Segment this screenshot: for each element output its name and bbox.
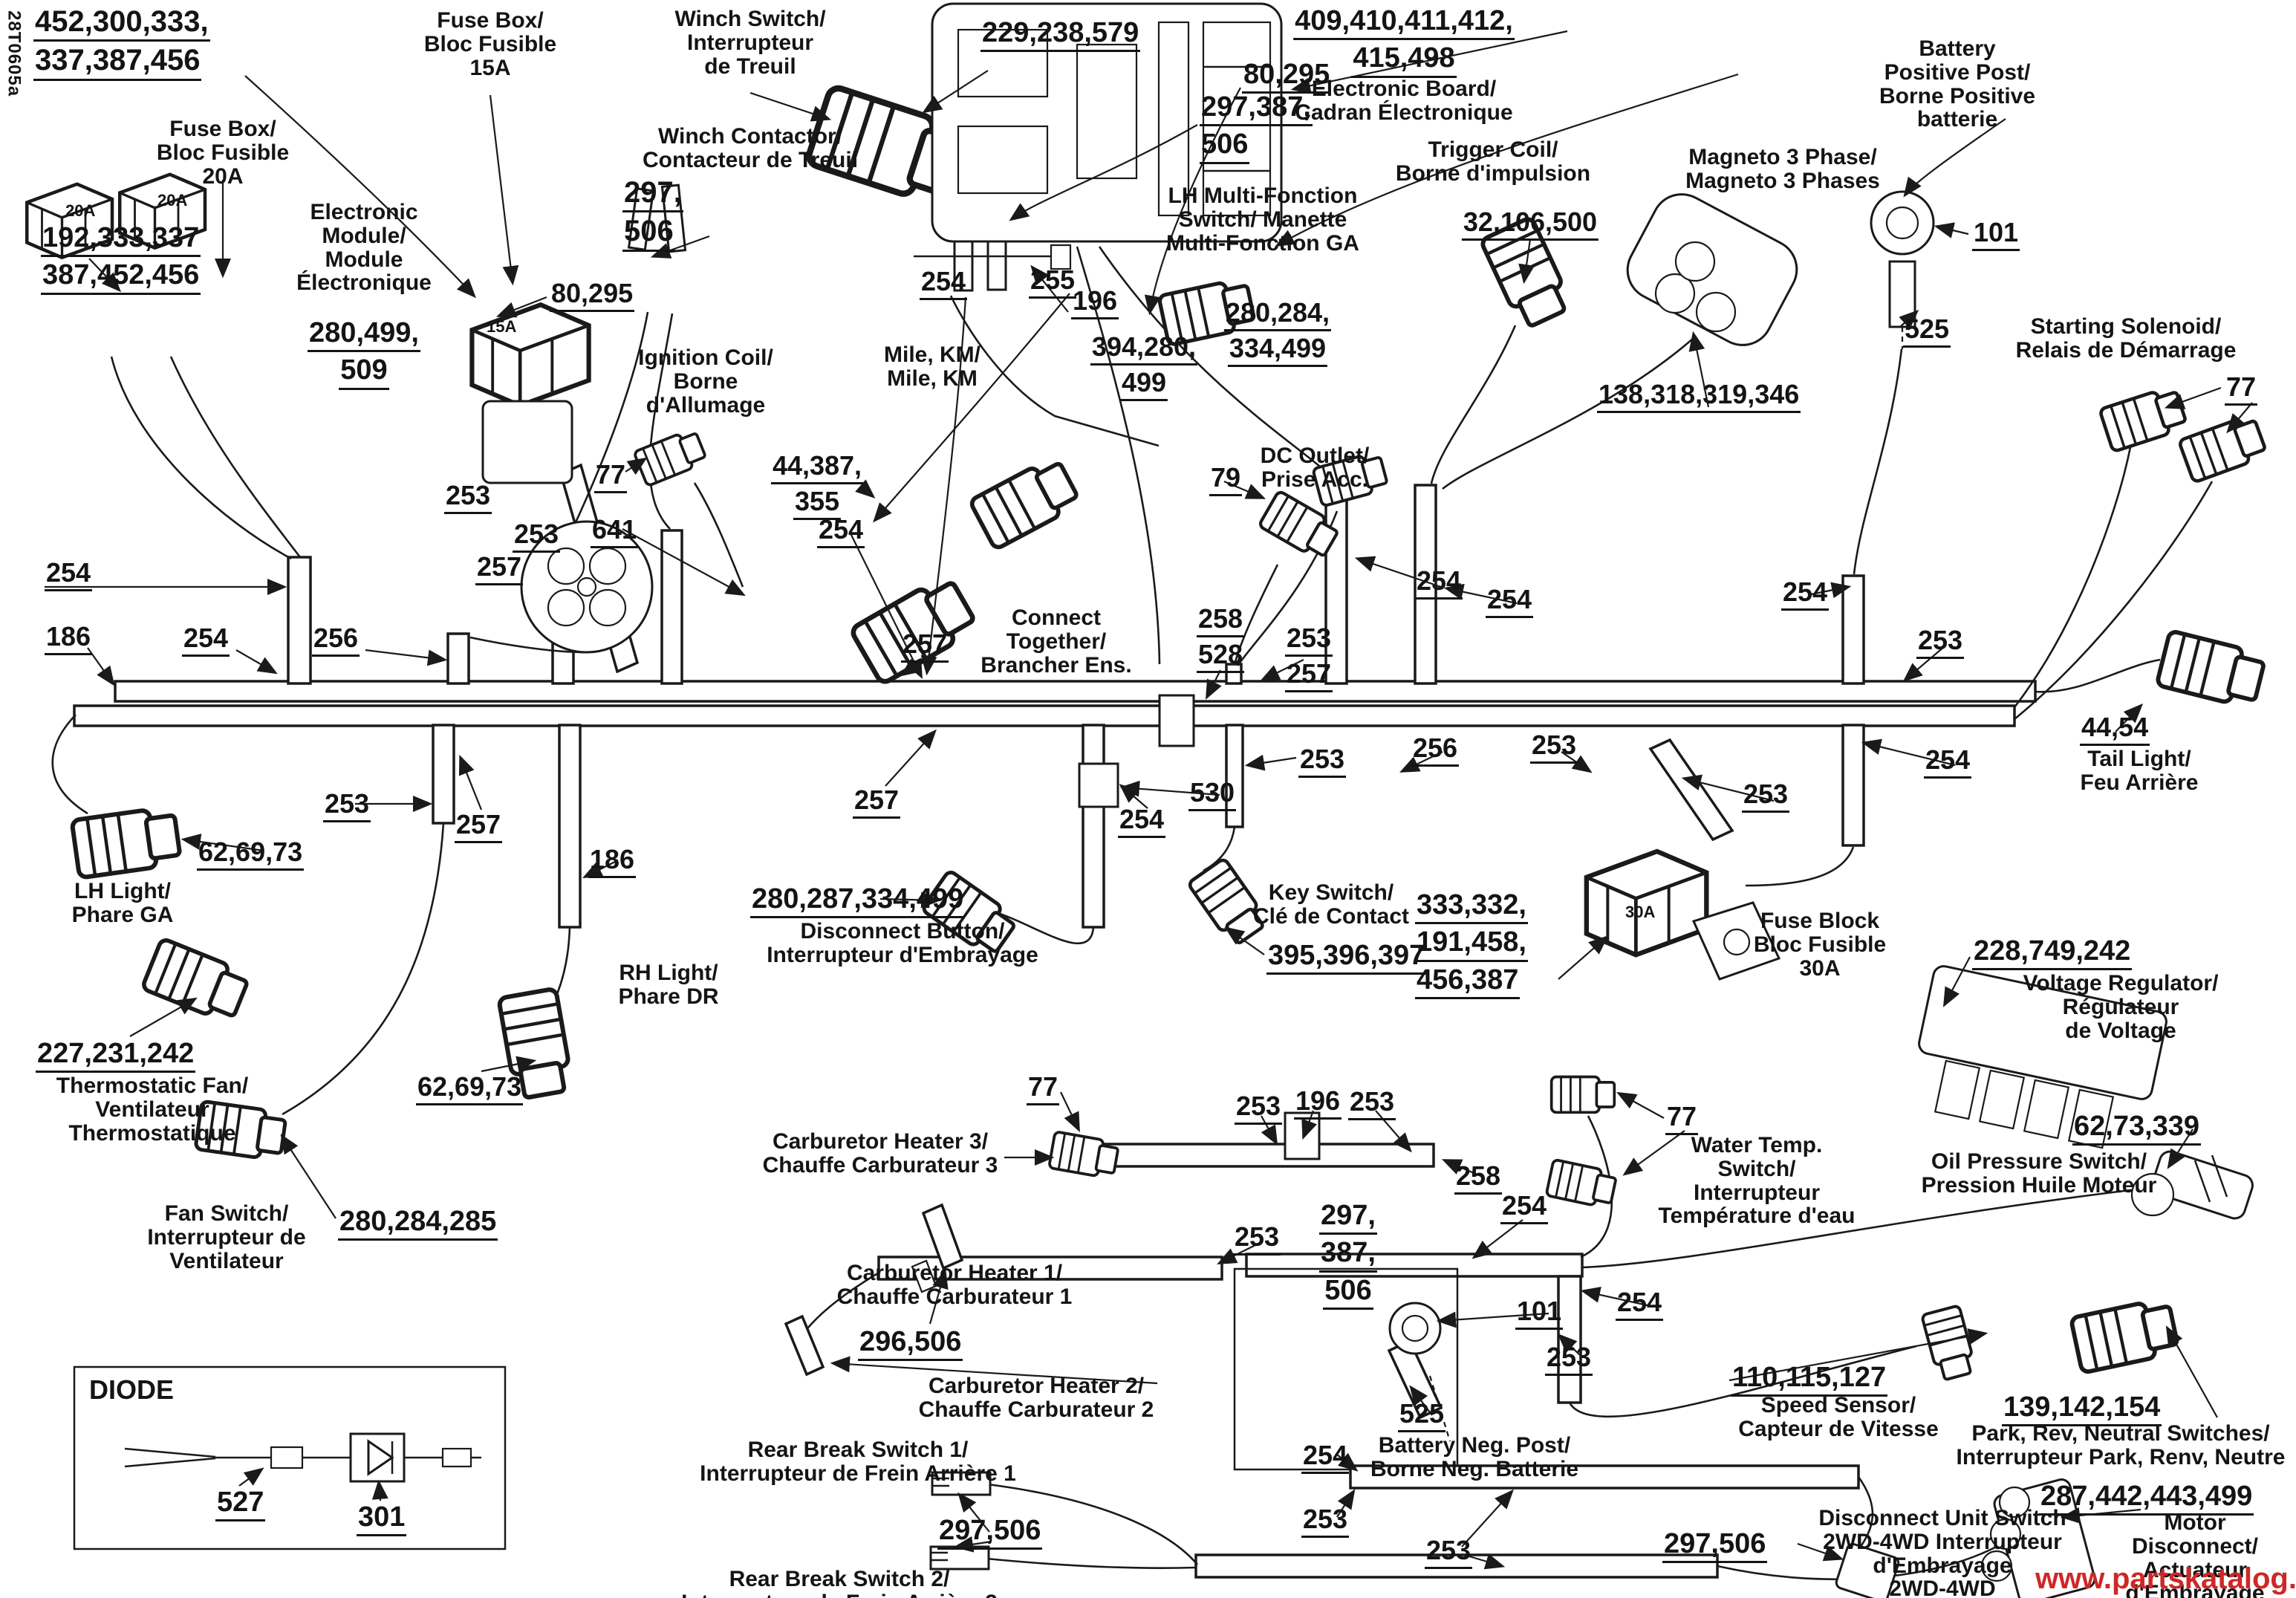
label-line: Together/ xyxy=(1006,630,1106,654)
label-line: 80,295 xyxy=(550,279,634,312)
label-line: Interrupteur de Frein Arrière 2 xyxy=(681,1591,998,1598)
lbl-voltage-regulator: Voltage Regulator/Régulateurde Voltage xyxy=(2023,972,2219,1042)
label-line: 258 xyxy=(1454,1162,1502,1195)
battery-neg-ring-glyph xyxy=(1390,1303,1440,1354)
lbl-carb2: Carburetor Heater 2/Chauffe Carburateur … xyxy=(919,1374,1154,1422)
marking-15a: 15A xyxy=(487,318,516,335)
lh-light-connector-glyph xyxy=(71,806,181,877)
lbl-water-temp: Water Temp.Switch/InterrupteurTempératur… xyxy=(1659,1134,1856,1228)
label-line: 62,69,73 xyxy=(416,1073,523,1105)
ref-ignition-coil: 77 xyxy=(594,461,627,496)
marking-20a-1: 20A xyxy=(65,202,95,219)
ref-key-switch: 395,396,397 xyxy=(1266,941,1426,978)
label-line: Voltage Regulator/ xyxy=(2023,972,2219,995)
ref-80295-fusebox: 80,295 xyxy=(550,279,634,315)
label-line: Ventilateur xyxy=(169,1250,283,1273)
label-line: Oil Pressure Switch/ xyxy=(1931,1150,2147,1174)
carb-heater3-connector-glyph xyxy=(1049,1131,1119,1179)
label-line: Starting Solenoid/ xyxy=(2031,315,2222,339)
label-line: Trigger Coil/ xyxy=(1428,138,1558,162)
ref-254-mid: 254 xyxy=(817,516,865,551)
label-line: Bloc Fusible xyxy=(157,141,289,165)
battery-ring-glyph xyxy=(1871,192,1934,254)
lbl-park-rev: Park, Rev, Neutral Switches/Interrupteur… xyxy=(1957,1422,2286,1469)
lbl-carb3: Carburetor Heater 3/Chauffe Carburateur … xyxy=(763,1130,998,1178)
label-line: 79 xyxy=(1209,464,1242,496)
label-line: 30A xyxy=(1799,957,1840,981)
label-line: 254 xyxy=(1118,805,1165,838)
label-line: 415,498 xyxy=(1351,43,1456,77)
ref-253-fuseblock-feed: 253 xyxy=(1742,780,1789,816)
wiring-diagram-page: 28T0605a452,300,333,337,387,456Fuse Box/… xyxy=(0,0,2296,1598)
label-line: 257 xyxy=(853,786,900,819)
ref-254-fuseblock: 254 xyxy=(1924,746,1971,782)
label-line: Tail Light/ xyxy=(2087,747,2191,771)
ref-rear-brake: 297,506 xyxy=(937,1516,1042,1553)
label-line: Disconnect Unit Switch xyxy=(1818,1507,2066,1530)
label-line: Fuse Box/ xyxy=(169,117,276,141)
label-line: 253 xyxy=(1348,1088,1396,1120)
label-line: Rear Break Switch 2/ xyxy=(729,1568,950,1591)
label-line: 257 xyxy=(475,553,523,585)
ref-253-bottom: 253 xyxy=(1301,1505,1349,1541)
ref-253-dunit: 253 xyxy=(1425,1536,1472,1572)
label-line: d'Allumage xyxy=(646,394,766,418)
lbl-dc-outlet: DC Outlet/Prise Acc. xyxy=(1261,444,1370,492)
ref-disconnect-button: 280,287,334,499 xyxy=(750,884,965,921)
ref-254-530: 254 xyxy=(1118,805,1165,841)
ref-253-water: 253 xyxy=(1348,1088,1396,1123)
ref-253-key: 253 xyxy=(1298,745,1346,781)
label-line: 253 xyxy=(1285,624,1333,657)
label-line: 409,410,411,412, xyxy=(1293,6,1515,40)
lbl-carb1: Carburetor Heater 1/Chauffe Carburateur … xyxy=(837,1261,1073,1309)
label-line: Winch Switch/ xyxy=(674,7,825,31)
label-line: LH Multi-Fonction xyxy=(1168,184,1358,208)
label-line: 257 xyxy=(901,630,949,663)
diode-title: DIODE xyxy=(89,1376,174,1404)
label-line: 28T0605a xyxy=(4,10,23,97)
label-line: Électronique xyxy=(296,271,432,295)
label-line: 258 xyxy=(1197,605,1244,637)
label-line: 62,73,339 xyxy=(2072,1111,2201,1146)
ref-electronic-module: 280,499,509 xyxy=(308,318,420,393)
label-line: 334,499 xyxy=(1228,334,1327,367)
thermostatic-fan-connector-glyph xyxy=(142,938,251,1024)
label-line: Ventilateur xyxy=(95,1098,209,1122)
label-line: Interrupteur de Frein Arrière 1 xyxy=(700,1462,1016,1486)
ref-diode: 301 xyxy=(357,1502,406,1539)
label-line: Interrupteur d'Embrayage xyxy=(767,943,1038,967)
ref-battery-ring: 101 xyxy=(1972,218,2020,254)
label-line: Mile, KM xyxy=(887,367,978,391)
label-line: 253 xyxy=(1301,1505,1349,1538)
ref-253-right: 253 xyxy=(1916,626,1964,662)
label-line: Bloc Fusible xyxy=(1754,933,1886,957)
magneto-connector-glyph xyxy=(1617,183,1807,355)
label-line: Brancher Ens. xyxy=(980,654,1131,678)
label-line: Pression Huile Moteur xyxy=(1922,1174,2157,1198)
ref-258-528: 258528 xyxy=(1197,605,1244,676)
label-line: 254 xyxy=(45,559,92,591)
label-line: Relais de Démarrage xyxy=(2016,339,2237,363)
label-line: 297,506 xyxy=(1662,1529,1767,1563)
ref-196-carbbus: 196 xyxy=(1294,1087,1341,1123)
label-line: Borne d'impulsion xyxy=(1396,162,1590,186)
ref-connect-a: 44,387,355 xyxy=(771,452,863,523)
label-line: 253 xyxy=(323,790,371,822)
label-line: 256 xyxy=(1411,734,1459,767)
label-line: LH Light/ xyxy=(74,880,171,903)
label-line: 253 xyxy=(1425,1536,1472,1569)
label-line: Connect xyxy=(1012,606,1101,630)
label-line: 77 xyxy=(1665,1102,1698,1135)
ref-255: 255 xyxy=(1029,266,1076,302)
label-line: batterie xyxy=(1917,108,1997,131)
label-line: Positive Post/ xyxy=(1884,61,2031,85)
park-rev-neutral-connector-glyph xyxy=(2071,1298,2179,1373)
label-line: 253 xyxy=(444,481,492,514)
ref-253-below-right: 253 xyxy=(1530,731,1578,767)
label-line: Winch Contactor/ xyxy=(658,125,842,149)
ref-magneto: 138,318,319,346 xyxy=(1597,380,1801,416)
ref-trigger-coil: 32,106,500 xyxy=(1462,208,1599,244)
ref-mile-km: 196 xyxy=(1071,287,1119,322)
lbl-electronic-board: Electronic Board/Cadran Électronique xyxy=(1295,77,1512,125)
ref-battery-conduit: 525 xyxy=(1903,315,1951,351)
label-line: Chauffe Carburateur 3 xyxy=(763,1154,998,1178)
label-line: Prise Acc. xyxy=(1261,468,1368,492)
label-line: 254 xyxy=(1500,1192,1548,1224)
label-line: Mile, KM/ xyxy=(884,343,980,367)
ref-256-below: 256 xyxy=(1411,734,1459,770)
label-line: Clé de Contact xyxy=(1253,905,1409,929)
ref-lh-light: 62,69,73 xyxy=(197,838,304,874)
lbl-connect-together: ConnectTogether/Brancher Ens. xyxy=(980,606,1131,677)
ref-257-fan: 257 xyxy=(455,811,502,846)
label-line: Borne Neg. Batterie xyxy=(1370,1458,1578,1481)
lbl-trigger-coil: Trigger Coil/Borne d'impulsion xyxy=(1396,138,1590,186)
ref-rh-light: 62,69,73 xyxy=(416,1073,523,1108)
ref-fuse-block: 333,332,191,458,456,387 xyxy=(1415,890,1528,1002)
label-line: 101 xyxy=(1972,218,2020,251)
label-line: Disconnect/ xyxy=(2132,1535,2258,1559)
label-line: 253 xyxy=(1298,745,1346,778)
lbl-electronic-module: ElectronicModule/ModuleÉlectronique xyxy=(296,201,432,295)
label-line: Phare DR xyxy=(618,985,718,1009)
label-line: 77 xyxy=(1027,1073,1059,1105)
ref-530: 530 xyxy=(1188,779,1236,814)
ref-253-upleft1: 253 xyxy=(444,481,492,517)
ref-254-water: 254 xyxy=(1500,1192,1548,1227)
ref-297-387-506: 297,387,506 xyxy=(1319,1201,1377,1313)
label-line: Fan Switch/ xyxy=(165,1202,289,1226)
label-line: Capteur de Vitesse xyxy=(1738,1417,1939,1441)
label-line: RH Light/ xyxy=(619,961,718,985)
ref-253-carb2: 253 xyxy=(1233,1223,1281,1258)
label-line: 280,284, xyxy=(1224,299,1331,331)
label-line: 196 xyxy=(1071,287,1119,319)
lbl-lh-multifunction: LH Multi-FonctionSwitch/ ManetteMulti-Fo… xyxy=(1166,184,1359,255)
label-line: de Treuil xyxy=(704,55,796,79)
label-line: 280,499, xyxy=(308,318,420,352)
label-line: Fuse Block xyxy=(1760,909,1879,933)
label-line: 296,506 xyxy=(858,1327,963,1361)
label-line: 15A xyxy=(487,318,516,335)
ref-fusebox15: 452,300,333,337,387,456 xyxy=(33,6,210,84)
label-line: 254 xyxy=(1486,585,1533,618)
label-line: 506 xyxy=(1200,129,1249,163)
tail-light-connector-glyph xyxy=(2156,631,2266,709)
label-line: 509 xyxy=(339,355,388,389)
label-line: Motor xyxy=(2164,1511,2225,1535)
lbl-thermostatic-fan: Thermostatic Fan/VentilateurThermostatiq… xyxy=(56,1074,248,1145)
label-line: 256 xyxy=(312,624,360,657)
ref-connect-b: 641 xyxy=(591,516,638,551)
label-line: Park, Rev, Neutral Switches/ xyxy=(1971,1422,2269,1446)
label-line: Température d'eau xyxy=(1659,1204,1856,1228)
label-line: 186 xyxy=(588,845,636,878)
label-line: 253 xyxy=(1742,780,1789,813)
lbl-lh-light: LH Light/Phare GA xyxy=(72,880,174,927)
label-line: 228,749,242 xyxy=(1972,936,2132,970)
label-line: Magneto 3 Phases xyxy=(1685,169,1880,193)
label-line: 254 xyxy=(1924,746,1971,779)
label-line: Key Switch/ xyxy=(1269,881,1393,905)
label-line: 525 xyxy=(1903,315,1951,348)
label-line: 506 xyxy=(1323,1276,1373,1310)
water-temp-connector-glyph-1 xyxy=(1552,1077,1615,1113)
lbl-speed-sensor: Speed Sensor/Capteur de Vitesse xyxy=(1738,1394,1939,1441)
label-line: Interrupteur de xyxy=(147,1226,305,1250)
solenoid-connector-glyph-2 xyxy=(2179,414,2268,482)
label-line: Speed Sensor/ xyxy=(1761,1394,1916,1417)
label-line: 254 xyxy=(1301,1441,1349,1474)
label-line: 254 xyxy=(1616,1288,1663,1321)
ref-fan-switch: 280,284,285 xyxy=(338,1206,498,1244)
label-line: 186 xyxy=(45,623,92,655)
label-line: 257 xyxy=(1285,660,1333,692)
label-line: Rear Break Switch 1/ xyxy=(748,1438,969,1462)
label-line: 227,231,242 xyxy=(36,1039,195,1073)
ref-253-257: 253257 xyxy=(1285,624,1333,695)
ref-tail-light: 44,54 xyxy=(2080,713,2150,749)
label-line: 456,387 xyxy=(1415,965,1520,999)
label-line: Multi-Fonction GA xyxy=(1166,232,1359,256)
label-line: Carburetor Heater 2/ xyxy=(929,1374,1144,1398)
ref-carb1: 296,506 xyxy=(858,1327,963,1364)
label-line: Electronic Board/ xyxy=(1312,77,1496,101)
label-line: 337,387,456 xyxy=(33,45,201,80)
label-line: 530 xyxy=(1188,779,1236,811)
ref-oil-pressure: 62,73,339 xyxy=(2072,1111,2201,1149)
label-line: DC Outlet/ xyxy=(1261,444,1370,468)
label-line: Chauffe Carburateur 1 xyxy=(837,1285,1073,1309)
label-line: Interrupteur xyxy=(687,31,813,55)
ref-253-fan: 253 xyxy=(323,790,371,825)
label-line: DIODE xyxy=(89,1376,174,1404)
label-line: 110,115,127 xyxy=(1731,1362,1887,1397)
label-line: Battery Neg. Post/ xyxy=(1379,1434,1570,1458)
label-line: 333,332, xyxy=(1415,890,1528,924)
label-line: Ignition Coil/ xyxy=(638,346,773,370)
label-line: 20A xyxy=(202,165,243,189)
ref-electronic-board: 409,410,411,412,415,498 xyxy=(1293,6,1515,81)
ref-254-long: 254 xyxy=(920,267,967,303)
label-line: 2WD-4WD xyxy=(1889,1577,1995,1598)
label-line: 30A xyxy=(1625,903,1655,920)
marking-30a: 30A xyxy=(1625,903,1655,920)
label-line: 528 xyxy=(1197,640,1244,673)
label-line: 15A xyxy=(469,56,510,80)
lbl-ignition-coil: Ignition Coil/Borned'Allumage xyxy=(638,346,773,417)
lbl-key-switch: Key Switch/Clé de Contact xyxy=(1253,881,1409,929)
label-line: 20A xyxy=(157,192,187,209)
lbl-tail-light: Tail Light/Feu Arrière xyxy=(2081,747,2199,795)
lbl-oil-pressure: Oil Pressure Switch/Pression Huile Moteu… xyxy=(1922,1150,2157,1198)
ref-thermostatic-fan: 227,231,242 xyxy=(36,1039,195,1076)
ignition-coil-connector-glyph xyxy=(634,428,708,487)
ref-carb3: 77 xyxy=(1027,1073,1059,1108)
lbl-starting-solenoid: Starting Solenoid/Relais de Démarrage xyxy=(2016,315,2237,363)
label-line: 506 xyxy=(622,215,675,251)
ref-254-dc: 254 xyxy=(1415,567,1463,603)
label-line: 253 xyxy=(1235,1092,1282,1125)
label-line: Bloc Fusible xyxy=(424,33,556,56)
label-line: 297,506 xyxy=(937,1516,1042,1550)
ref-254-bottom: 254 xyxy=(1301,1441,1349,1477)
label-line: 77 xyxy=(594,461,627,493)
label-line: 229,238,579 xyxy=(980,18,1140,52)
label-line: 395,396,397 xyxy=(1266,941,1426,975)
label-line: Fuse Box/ xyxy=(437,9,543,33)
ref-254-left2: 254 xyxy=(182,624,230,660)
label-line: 527 xyxy=(215,1487,265,1521)
label-line: 255 xyxy=(1029,266,1076,299)
label-line: 387,452,456 xyxy=(41,260,201,294)
ref-fusebox20: 192,333,337387,452,456 xyxy=(41,223,201,298)
label-line: 191,458, xyxy=(1415,927,1528,961)
ref-253-speed: 253 xyxy=(1545,1343,1593,1379)
label-line: 62,69,73 xyxy=(197,838,304,871)
label-line: 394,280, xyxy=(1090,333,1197,366)
label-line: 452,300,333, xyxy=(33,6,210,42)
ref-254-battery: 254 xyxy=(1781,578,1829,614)
lbl-fusebox20: Fuse Box/Bloc Fusible20A xyxy=(157,117,289,188)
lbl-fan-switch: Fan Switch/Interrupteur deVentilateur xyxy=(147,1202,305,1273)
label-line: Module/ xyxy=(322,224,406,248)
label-line: 257 xyxy=(455,811,502,843)
lbl-rear-brake2: Rear Break Switch 2/Interrupteur de Frei… xyxy=(681,1568,998,1598)
label-line: 253 xyxy=(1233,1223,1281,1256)
label-line: Feu Arrière xyxy=(2081,771,2199,795)
label-line: Phare GA xyxy=(72,903,174,927)
ref-258-water: 258 xyxy=(1454,1162,1502,1198)
label-line: 20A xyxy=(65,202,95,219)
label-line: 641 xyxy=(591,516,638,548)
ref-voltage-regulator: 228,749,242 xyxy=(1972,936,2132,973)
lbl-winch-switch: Winch Switch/Interrupteurde Treuil xyxy=(674,7,825,78)
label-line: Battery xyxy=(1919,37,1995,61)
label-line: Switch/ Manette xyxy=(1179,208,1347,232)
ref-186-left: 186 xyxy=(45,623,92,658)
label-line: 77 xyxy=(2225,373,2257,406)
ref-254-trigger: 254 xyxy=(1486,585,1533,621)
label-line: 44,387, xyxy=(771,452,863,484)
ref-battery-neg-conduit: 525 xyxy=(1398,1400,1445,1435)
ref-257-center: 257 xyxy=(853,786,900,822)
harness-trunk xyxy=(74,681,2035,726)
label-line: 253 xyxy=(1530,731,1578,764)
ref-254-speed: 254 xyxy=(1616,1288,1663,1324)
lbl-disconnect-button: Disconnect Button/Interrupteur d'Embraya… xyxy=(767,920,1038,967)
ref-297-dunit: 297,506 xyxy=(1662,1529,1767,1566)
label-line: 254 xyxy=(182,624,230,657)
label-line: Water Temp. xyxy=(1691,1134,1823,1157)
ref-dc-outlet: 79 xyxy=(1209,464,1242,499)
label-line: Borne xyxy=(674,370,738,394)
label-line: 254 xyxy=(920,267,967,300)
marking-20a-2: 20A xyxy=(157,192,187,209)
label-line: 254 xyxy=(1781,578,1829,611)
label-line: Electronic xyxy=(310,201,417,224)
label-line: Module xyxy=(325,248,403,272)
label-line: Régulateur xyxy=(2063,995,2179,1019)
label-line: 387, xyxy=(1319,1238,1377,1272)
ref-257-upleft: 257 xyxy=(475,553,523,588)
label-line: de Voltage xyxy=(2065,1019,2176,1043)
label-line: 297, xyxy=(622,177,683,212)
fuse-block-30a-glyph xyxy=(1587,851,1779,979)
watermark: www.partskatalog.ru xyxy=(2035,1563,2296,1594)
label-line: Magneto 3 Phase/ xyxy=(1688,146,1876,169)
lbl-battery-positive: BatteryPositive Post/Borne Positivebatte… xyxy=(1879,37,2035,131)
lbl-mile-km: Mile, KM/Mile, KM xyxy=(884,343,980,391)
label-line: Disconnect Button/ xyxy=(801,920,1005,943)
label-line: d'Embrayage xyxy=(1873,1554,2012,1578)
label-line: Switch/ xyxy=(1717,1157,1795,1181)
lbl-fusebox15: Fuse Box/Bloc Fusible15A xyxy=(424,9,556,79)
label-line: Thermostatic Fan/ xyxy=(56,1074,248,1098)
ref-battery-neg-ring: 101 xyxy=(1515,1297,1563,1333)
lbl-disconnect-unit: Disconnect Unit Switch2WD-4WD Interrupte… xyxy=(1818,1507,2066,1598)
lbl-magneto: Magneto 3 Phase/Magneto 3 Phases xyxy=(1685,146,1880,193)
ref-394-280-499: 394,280,499 xyxy=(1090,333,1197,404)
label-line: Cadran Électronique xyxy=(1295,101,1512,125)
lbl-winch-contactor: Winch Contactor/Contacteur de Treuil xyxy=(643,125,858,172)
label-line: 301 xyxy=(357,1502,406,1536)
label-line: 297, xyxy=(1319,1201,1377,1235)
label-line: 196 xyxy=(1294,1087,1341,1120)
ref-257-mid: 257 xyxy=(901,630,949,666)
label-line: 254 xyxy=(1415,567,1463,600)
label-line: Interrupteur xyxy=(1694,1181,1820,1205)
label-line: 253 xyxy=(1545,1343,1593,1376)
connect-together-glyph-a xyxy=(969,455,1082,550)
label-line: 32,106,500 xyxy=(1462,208,1599,241)
label-line: 192,333,337 xyxy=(41,223,201,257)
lbl-rear-brake1: Rear Break Switch 1/Interrupteur de Frei… xyxy=(700,1438,1016,1486)
label-line: www.partskatalog.ru xyxy=(2035,1563,2296,1594)
label-line: 101 xyxy=(1515,1297,1563,1330)
lbl-rh-light: RH Light/Phare DR xyxy=(618,961,718,1009)
label-line: Interrupteur Park, Renv, Neutre xyxy=(1957,1446,2286,1469)
label-line: 254 xyxy=(817,516,865,548)
label-line: Contacteur de Treuil xyxy=(643,149,858,172)
label-line: Borne Positive xyxy=(1879,85,2035,108)
ref-winch-contactor: 297,506 xyxy=(622,177,683,255)
ref-256-left: 256 xyxy=(312,624,360,660)
